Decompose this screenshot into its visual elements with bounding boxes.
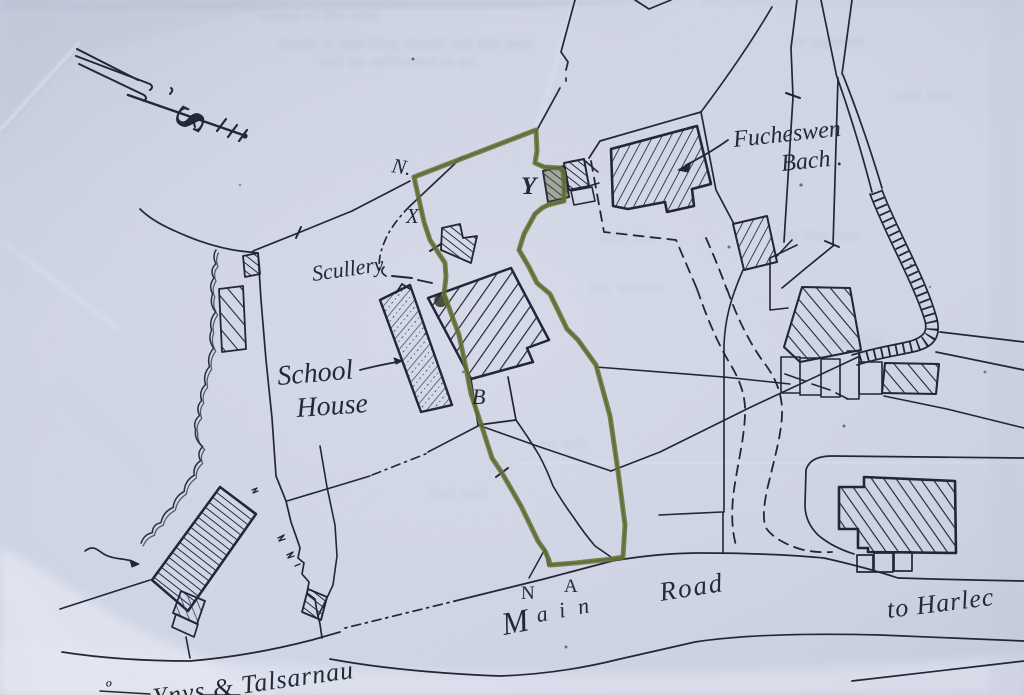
svg-text:B: B [472,384,485,409]
svg-text:iance of the rest: iance of the rest [262,8,380,23]
svg-text:that and: that and [428,486,487,501]
svg-text:made it and they found out the: made it and they found out the wee [280,36,534,51]
svg-text:X: X [405,204,420,228]
svg-text:and sell: and sell [896,88,953,103]
svg-text:N.: N. [389,153,413,180]
svg-text:ed against: ed against [790,34,865,49]
svg-text:will be collected in an: will be collected in an [319,54,477,69]
svg-text:º: º [105,677,112,695]
svg-text:School: School [276,354,355,392]
svg-text:per annum: per annum [590,280,666,295]
svg-text:House: House [294,388,369,424]
